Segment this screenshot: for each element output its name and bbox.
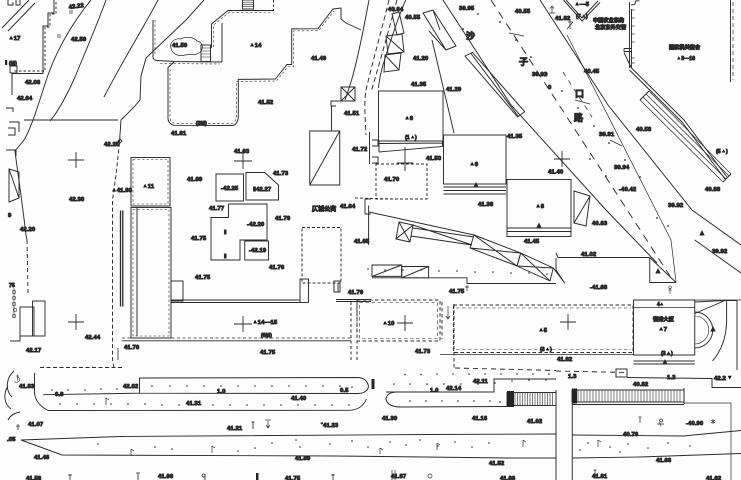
svg-text:40.68: 40.68 (705, 187, 721, 193)
svg-text:41.35: 41.35 (411, 82, 427, 88)
svg-text:41.61: 41.61 (171, 131, 187, 137)
svg-text:41.66: 41.66 (656, 458, 672, 464)
svg-text:42.14: 42.14 (446, 386, 462, 392)
svg-text:9: 9 (8, 213, 12, 219)
svg-text:41.79: 41.79 (348, 290, 364, 296)
svg-text:41.49: 41.49 (311, 56, 327, 62)
svg-text:41.46: 41.46 (34, 455, 50, 461)
svg-text:41.21: 41.21 (227, 426, 243, 432)
svg-text:41.75: 41.75 (285, 476, 301, 480)
svg-text:3—16: 3—16 (681, 56, 695, 62)
svg-text:41.75: 41.75 (260, 350, 276, 356)
svg-text:41.30: 41.30 (382, 416, 398, 422)
svg-text:40.58: 40.58 (636, 127, 652, 133)
svg-text:国家机关宿舍: 国家机关宿舍 (669, 44, 701, 51)
svg-text:41.52: 41.52 (258, 100, 274, 106)
svg-text:北京东外交管: 北京东外交管 (595, 24, 626, 31)
svg-text:41.93: 41.93 (117, 188, 133, 194)
svg-text:0: 0 (548, 85, 552, 91)
svg-text:40.55: 40.55 (405, 15, 421, 21)
svg-text:40.55: 40.55 (515, 9, 531, 15)
svg-text:‖: ‖ (224, 254, 227, 260)
svg-text:11: 11 (148, 184, 155, 190)
svg-text:‖42.27: ‖42.27 (253, 187, 272, 193)
svg-text:41.45: 41.45 (524, 239, 540, 245)
svg-text:41.63: 41.63 (234, 149, 250, 155)
svg-text:‖: ‖ (224, 230, 227, 236)
svg-text:41.50: 41.50 (426, 156, 442, 162)
svg-text:42.2: 42.2 (714, 376, 726, 382)
svg-text:41.75: 41.75 (195, 275, 211, 281)
svg-text:41.89: 41.89 (295, 456, 311, 462)
svg-text:(3: (3 (540, 347, 545, 353)
svg-text:40.45: 40.45 (584, 69, 600, 75)
svg-text:41.73: 41.73 (415, 349, 431, 355)
svg-text:41.70: 41.70 (384, 177, 400, 183)
svg-text:0.5: 0.5 (340, 388, 349, 394)
svg-text:8: 8 (475, 162, 479, 168)
svg-text:42.59: 42.59 (71, 37, 87, 43)
svg-text:悦秀大厦: 悦秀大厦 (653, 316, 675, 323)
svg-text:˚41.23: ˚41.23 (321, 422, 339, 429)
svg-text:14: 14 (255, 43, 262, 49)
svg-text:41.77: 41.77 (209, 206, 225, 212)
svg-text:39.92: 39.92 (668, 203, 684, 209)
svg-text:41.64: 41.64 (340, 204, 356, 210)
svg-text:41.75: 41.75 (449, 289, 465, 295)
svg-text:14—15: 14—15 (258, 320, 278, 326)
svg-text:39.94: 39.94 (614, 165, 630, 171)
svg-text:(M): (M) (9, 61, 17, 67)
svg-text:41.29: 41.29 (446, 87, 462, 93)
svg-text:41.59: 41.59 (172, 43, 188, 49)
svg-text:-42.20: -42.20 (247, 222, 265, 228)
svg-text:(3: (3 (661, 351, 666, 357)
svg-text:40.63: 40.63 (592, 221, 608, 227)
svg-text:41.52: 41.52 (489, 461, 505, 467)
svg-text:41.16: 41.16 (472, 416, 488, 422)
svg-text:42.02: 42.02 (123, 384, 139, 390)
svg-text:41.69: 41.69 (187, 177, 203, 183)
svg-text:-40.42: -40.42 (619, 187, 637, 193)
svg-text:42.11: 42.11 (473, 379, 489, 385)
svg-text:42.44: 42.44 (85, 335, 101, 341)
svg-text:4: 4 (657, 302, 660, 308)
svg-text:40.64: 40.64 (388, 7, 404, 13)
svg-text:42.38: 42.38 (69, 197, 85, 203)
svg-text:子: 子 (519, 57, 528, 67)
svg-text:(1: (1 (405, 135, 410, 141)
svg-text:8: 8 (541, 204, 545, 210)
svg-text:-41.68: -41.68 (590, 285, 608, 291)
svg-text:42.22: 42.22 (68, 3, 85, 11)
svg-text:): ) (671, 351, 673, 357)
svg-text:41.65: 41.65 (354, 239, 370, 245)
svg-text:1.3: 1.3 (568, 374, 577, 380)
svg-text:41.66: 41.66 (500, 476, 516, 480)
svg-text:-42.25: -42.25 (221, 186, 239, 192)
svg-text:1.0: 1.0 (217, 389, 226, 395)
svg-text:17: 17 (14, 36, 21, 42)
svg-text:41.66: 41.66 (158, 474, 174, 480)
svg-text:(5: (5 (716, 149, 721, 155)
svg-text:41.51: 41.51 (344, 111, 360, 117)
svg-text:42.06: 42.06 (25, 80, 41, 86)
svg-text:42.20: 42.20 (20, 227, 36, 233)
svg-text:42.25: 42.25 (104, 142, 120, 148)
svg-text:41.78: 41.78 (124, 345, 140, 351)
svg-text:10: 10 (388, 321, 395, 327)
svg-text:): ) (550, 347, 552, 353)
svg-text:): ) (726, 149, 728, 155)
svg-text:39.95: 39.95 (459, 6, 475, 12)
svg-text:沙: 沙 (466, 31, 475, 41)
svg-text:1.0: 1.0 (430, 388, 439, 394)
svg-text:41.31: 41.31 (186, 401, 202, 407)
svg-text:路: 路 (574, 112, 584, 123)
svg-text:41.02: 41.02 (527, 419, 543, 425)
svg-text:41.72: 41.72 (352, 147, 368, 153)
svg-text:中国农业东约: 中国农业东约 (593, 17, 624, 24)
svg-text:39.92: 39.92 (532, 72, 548, 78)
svg-text:41.81: 41.81 (592, 474, 608, 480)
svg-text:41.35: 41.35 (507, 134, 523, 140)
svg-text:40.76: 40.76 (623, 432, 639, 438)
svg-text:40.82: 40.82 (633, 382, 649, 388)
svg-text:6: 6 (410, 116, 414, 122)
svg-text:-42.19: -42.19 (249, 248, 267, 254)
svg-text:41.40: 41.40 (291, 396, 307, 402)
svg-text:41.20: 41.20 (413, 56, 429, 62)
svg-text:41.82: 41.82 (557, 357, 573, 363)
svg-text:39.91: 39.91 (599, 132, 615, 138)
svg-text:仄城公寓: 仄城公寓 (312, 205, 336, 213)
svg-text:41.78: 41.78 (275, 216, 291, 222)
svg-text:41.02: 41.02 (581, 252, 597, 258)
svg-text:41.75: 41.75 (191, 236, 207, 242)
svg-text:41.62: 41.62 (706, 476, 722, 480)
svg-text:75: 75 (9, 283, 15, 289)
svg-text:.05: .05 (7, 437, 16, 443)
svg-text:41.07: 41.07 (28, 422, 44, 428)
svg-text:41.38: 41.38 (478, 202, 494, 208)
svg-text:41.76: 41.76 (269, 265, 285, 271)
svg-text:41.82: 41.82 (555, 16, 571, 22)
svg-text:): ) (415, 135, 417, 141)
svg-text:41.83: 41.83 (19, 384, 35, 390)
svg-text:5: 5 (544, 328, 548, 334)
svg-text:—5: —5 (580, 2, 590, 8)
svg-text:-40.90: -40.90 (686, 421, 704, 427)
svg-text:7: 7 (664, 327, 668, 333)
svg-text:(3M): (3M) (196, 121, 207, 127)
svg-text:41.73: 41.73 (273, 171, 289, 177)
svg-text:41.87: 41.87 (391, 474, 407, 480)
svg-text:0.8: 0.8 (55, 392, 64, 398)
svg-text:41.40: 41.40 (548, 170, 564, 176)
svg-text:42.64: 42.64 (17, 96, 33, 102)
svg-text:41.56: 41.56 (26, 476, 42, 480)
svg-text:42.17: 42.17 (26, 348, 42, 354)
